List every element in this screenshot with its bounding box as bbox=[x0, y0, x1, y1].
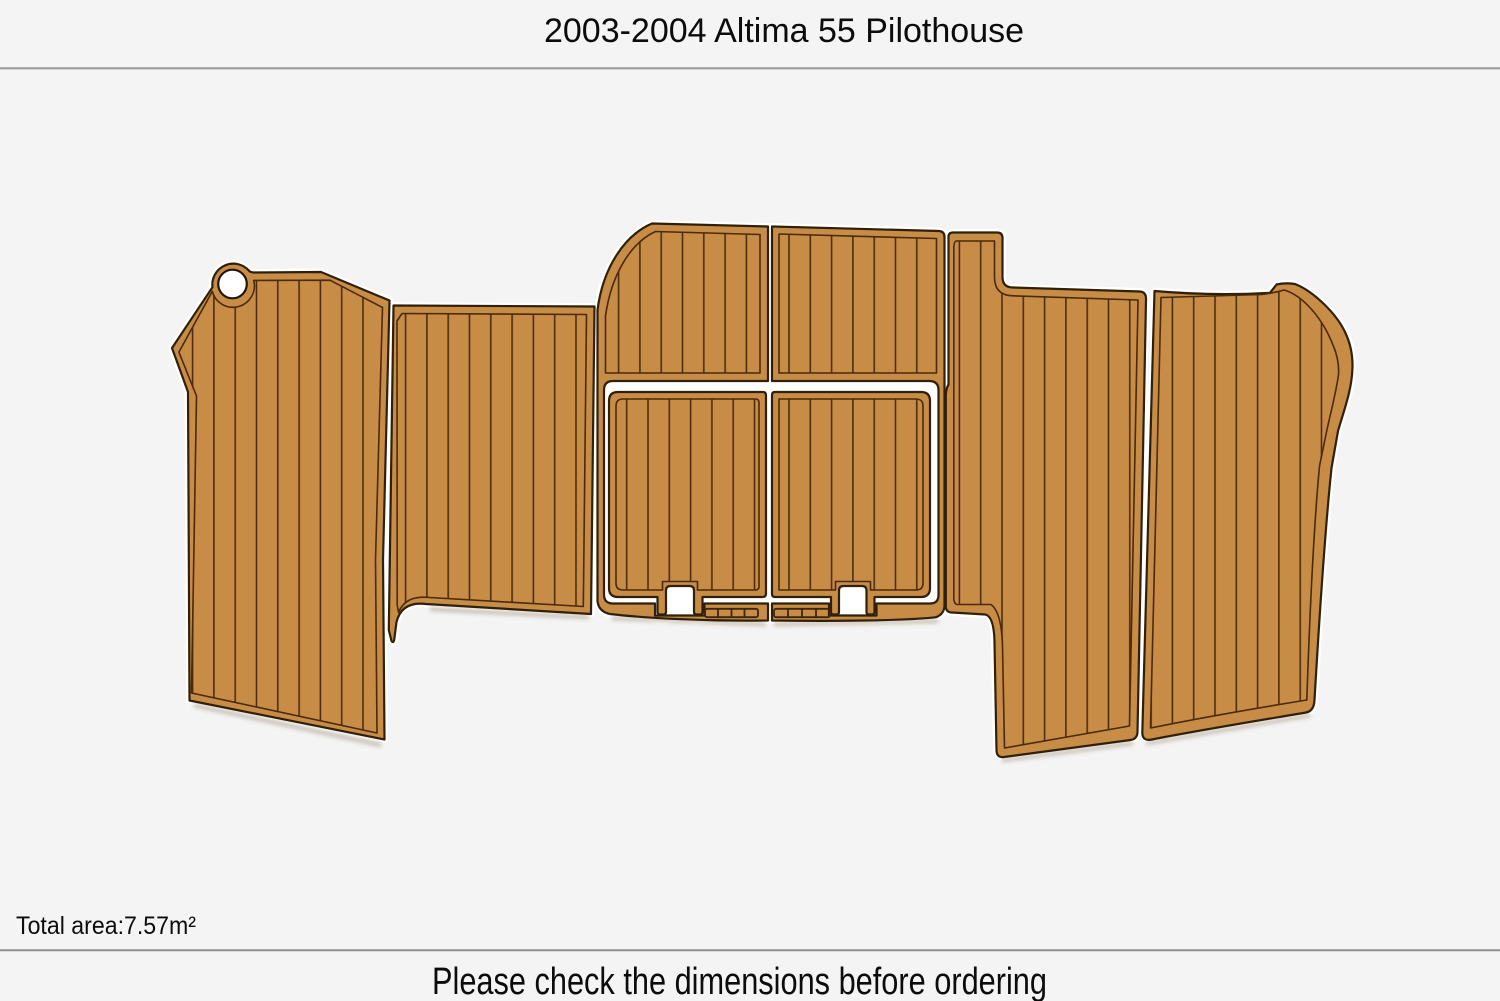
svg-text:Please check the dimensions be: Please check the dimensions before order… bbox=[432, 961, 1047, 1001]
svg-text:2003-2004 Altima 55 Pilothouse: 2003-2004 Altima 55 Pilothouse bbox=[544, 12, 1024, 50]
svg-text:Total area:7.57m²: Total area:7.57m² bbox=[16, 912, 196, 940]
